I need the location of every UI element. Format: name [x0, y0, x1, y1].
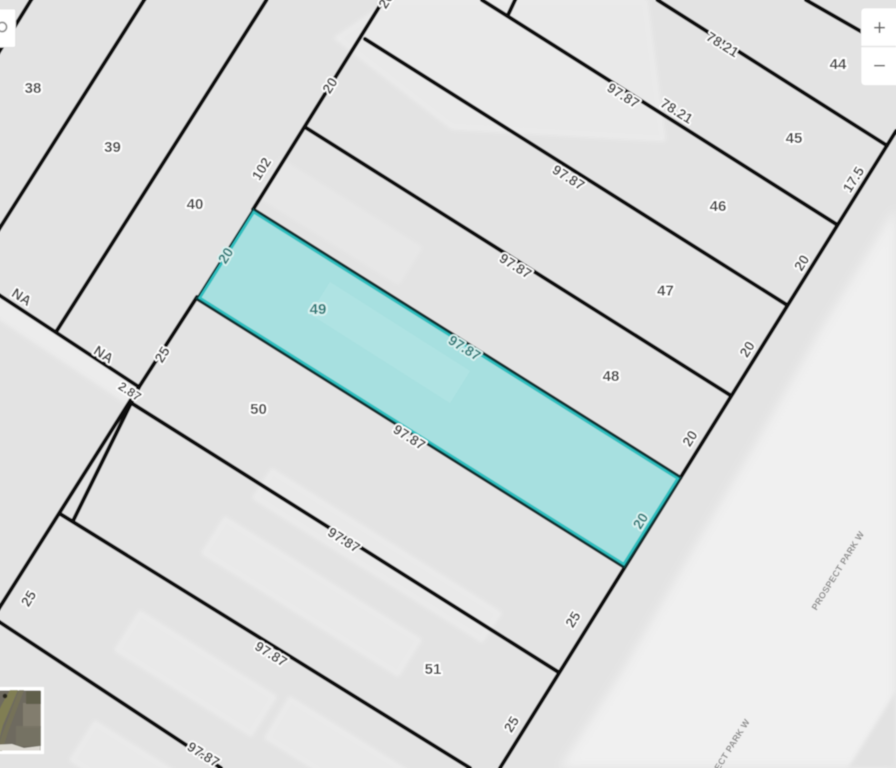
- svg-text:39: 39: [104, 139, 121, 156]
- svg-text:46: 46: [710, 198, 727, 215]
- svg-text:38: 38: [25, 80, 42, 97]
- svg-text:48: 48: [603, 368, 620, 385]
- svg-text:44: 44: [830, 56, 847, 73]
- svg-text:49: 49: [310, 301, 327, 318]
- svg-text:51: 51: [425, 661, 442, 678]
- svg-text:+: +: [873, 15, 886, 40]
- svg-text:45: 45: [786, 130, 803, 147]
- svg-text:50: 50: [250, 401, 267, 418]
- svg-text:47: 47: [657, 283, 674, 300]
- svg-text:40: 40: [187, 196, 204, 213]
- svg-text:−: −: [873, 53, 886, 78]
